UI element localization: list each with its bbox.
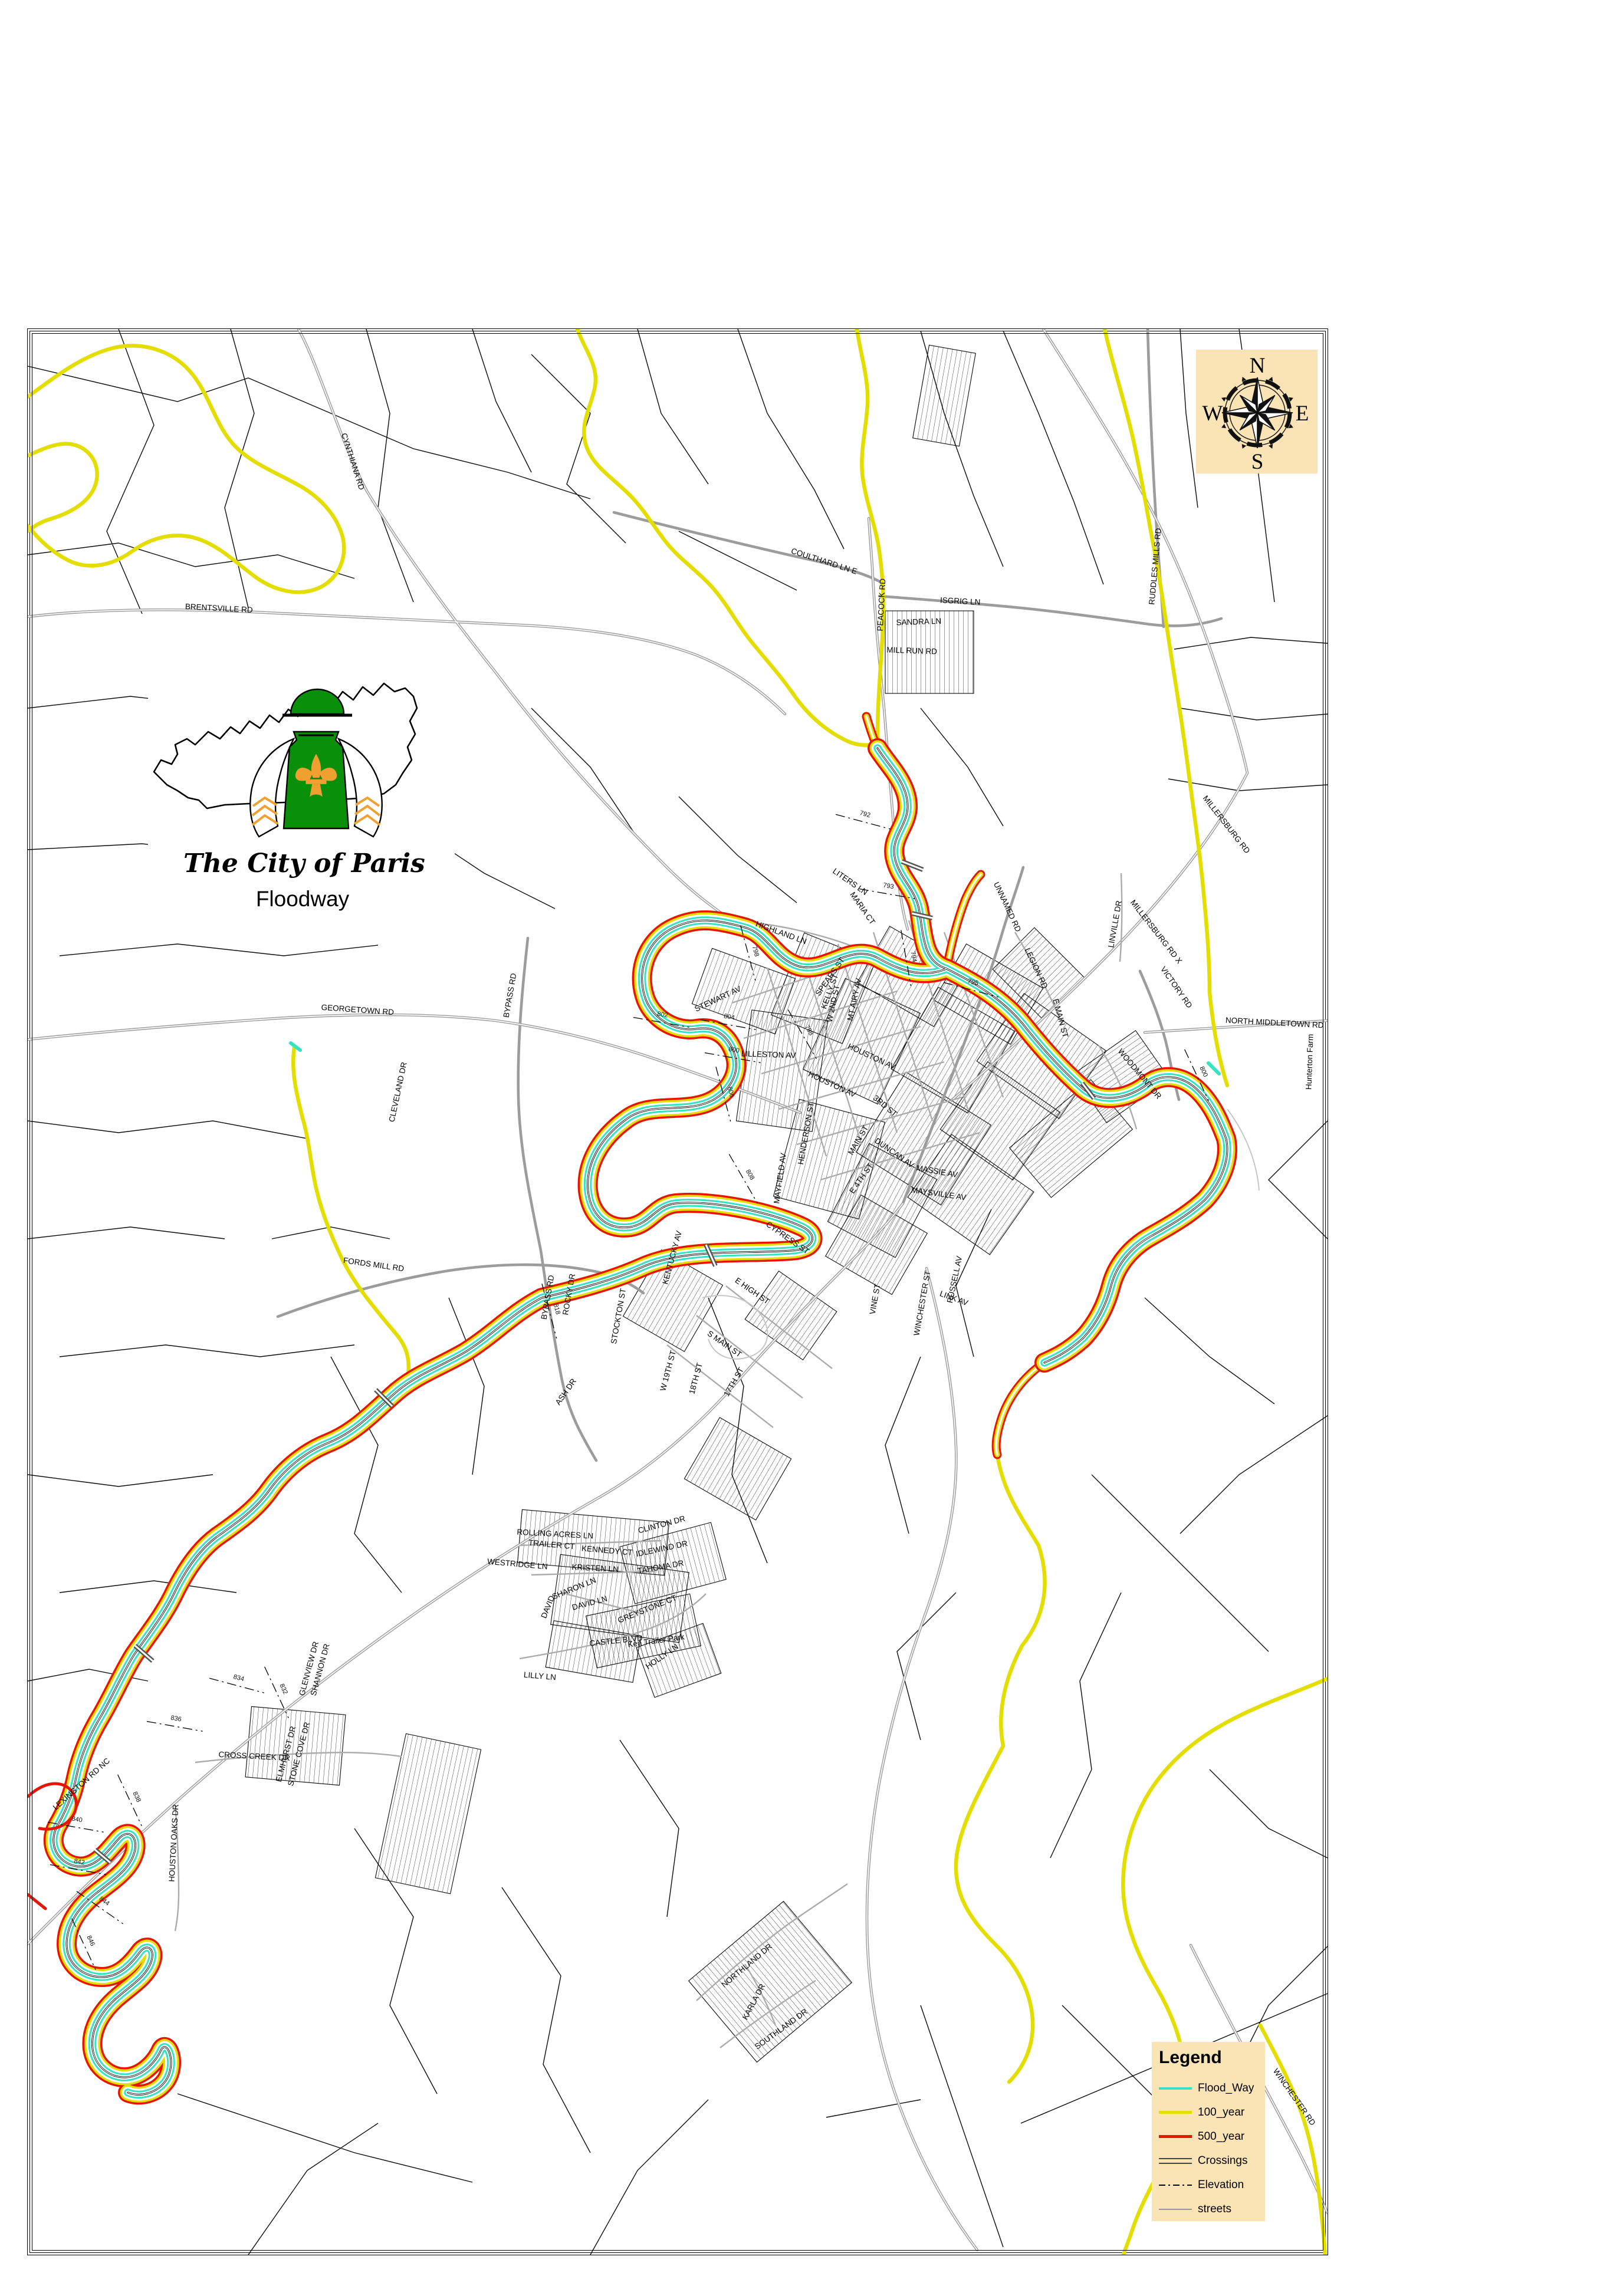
elevation-label: 840 (71, 1815, 83, 1824)
street-label: ASH DR (554, 1377, 579, 1407)
legend-item-label: Flood_Way (1198, 2082, 1254, 2095)
street-label: UNNAMED RD (992, 880, 1023, 933)
compass-east-label: E (1296, 402, 1309, 426)
elevation-label: 793 (882, 882, 894, 891)
floodway-swatch-icon (1159, 2087, 1192, 2090)
legend-row: Elevation (1159, 2173, 1265, 2197)
elevation-label: 792 (859, 810, 871, 819)
compass-south-label: S (1251, 450, 1264, 474)
elevation-label: 800 (1198, 1065, 1209, 1078)
legend-row: Flood_Way (1159, 2076, 1265, 2100)
legend-row: streets (1159, 2197, 1265, 2221)
street-label: VINE ST (868, 1283, 882, 1315)
street-label: MILLERSBURG RD X (1129, 898, 1184, 965)
street-label: W 19TH ST (658, 1350, 678, 1392)
street-label: FORDS MILL RD (343, 1256, 405, 1273)
street-label: COULTHARD LN E (790, 547, 859, 576)
legend-item-label: 100_year (1198, 2106, 1244, 2119)
map-frame: 7927937947957987988008008028048068088188… (27, 328, 1328, 2255)
street-label: LITERS LN (831, 867, 869, 897)
floodway-corridor (28, 716, 1227, 2094)
compass-west-label: W (1203, 402, 1223, 426)
legend-item-label: 500_year (1198, 2130, 1244, 2143)
elevation-label: 804 (723, 1013, 735, 1022)
logo-title: The City of Paris (183, 848, 425, 879)
legend-item-label: Crossings (1198, 2154, 1247, 2167)
street-label: MILL RUN RD (886, 646, 937, 656)
street-label: LILLY LN (523, 1670, 556, 1682)
year100-swatch-icon (1159, 2111, 1192, 2114)
street-label: CLEVELAND DR (387, 1061, 408, 1123)
street-label: BRENTSVILLE RD (185, 602, 254, 614)
legend-item-label: Elevation (1198, 2179, 1244, 2192)
street-label: S MAIN ST (706, 1329, 744, 1359)
crossings-swatch-icon (1159, 2158, 1192, 2164)
compass-rose: N E S W (1196, 350, 1318, 474)
street-label: WINCHESTER ST (912, 1270, 932, 1337)
city-logo: The City of Paris Floodway (148, 667, 455, 920)
legend-row: 500_year (1159, 2124, 1265, 2149)
page: 7927937947957987988008008028048068088188… (0, 0, 1623, 2296)
elevation-label: 838 (131, 1791, 142, 1804)
year500-swatch-icon (1159, 2135, 1192, 2138)
elevation-swatch-icon (1159, 2185, 1192, 2186)
legend-row: 100_year (1159, 2100, 1265, 2124)
street-label: CYNTHIANA RD (340, 432, 366, 491)
street-label: 18TH ST (687, 1362, 704, 1395)
street-label: SANDRA LN (896, 617, 941, 627)
elevation-label: 846 (85, 1935, 96, 1948)
elevation-label: 834 (232, 1673, 245, 1683)
legend-title: Legend (1159, 2048, 1265, 2068)
elevation-label: 836 (170, 1715, 182, 1723)
logo-subtitle: Floodway (256, 887, 350, 911)
elevation-contour-line (147, 1722, 203, 1732)
compass-north-label: N (1250, 354, 1266, 378)
legend-items: Flood_Way100_year500_yearCrossingsElevat… (1159, 2076, 1265, 2221)
floodway-map: 7927937947957987988008008028048068088188… (28, 329, 1328, 2255)
street-label: MILLERSBURG RD (1201, 794, 1252, 855)
street-label: VICTORY RD (1159, 965, 1194, 1009)
street-label: ISGRIG LN (940, 596, 981, 607)
street-label: WINCHESTER RD (1272, 2067, 1318, 2127)
elevation-label: 808 (744, 1169, 756, 1182)
legend-item-label: streets (1198, 2203, 1231, 2216)
elevation-label: 818 (552, 1303, 561, 1315)
streets-swatch-icon (1159, 2209, 1192, 2210)
elevation-label: 832 (278, 1683, 289, 1696)
street-label: Hunterton Farm (1304, 1034, 1315, 1090)
legend: Legend Flood_Way100_year500_yearCrossing… (1152, 2042, 1265, 2221)
street-label: BYPASS RD (502, 972, 518, 1018)
legend-row: Crossings (1159, 2149, 1265, 2173)
